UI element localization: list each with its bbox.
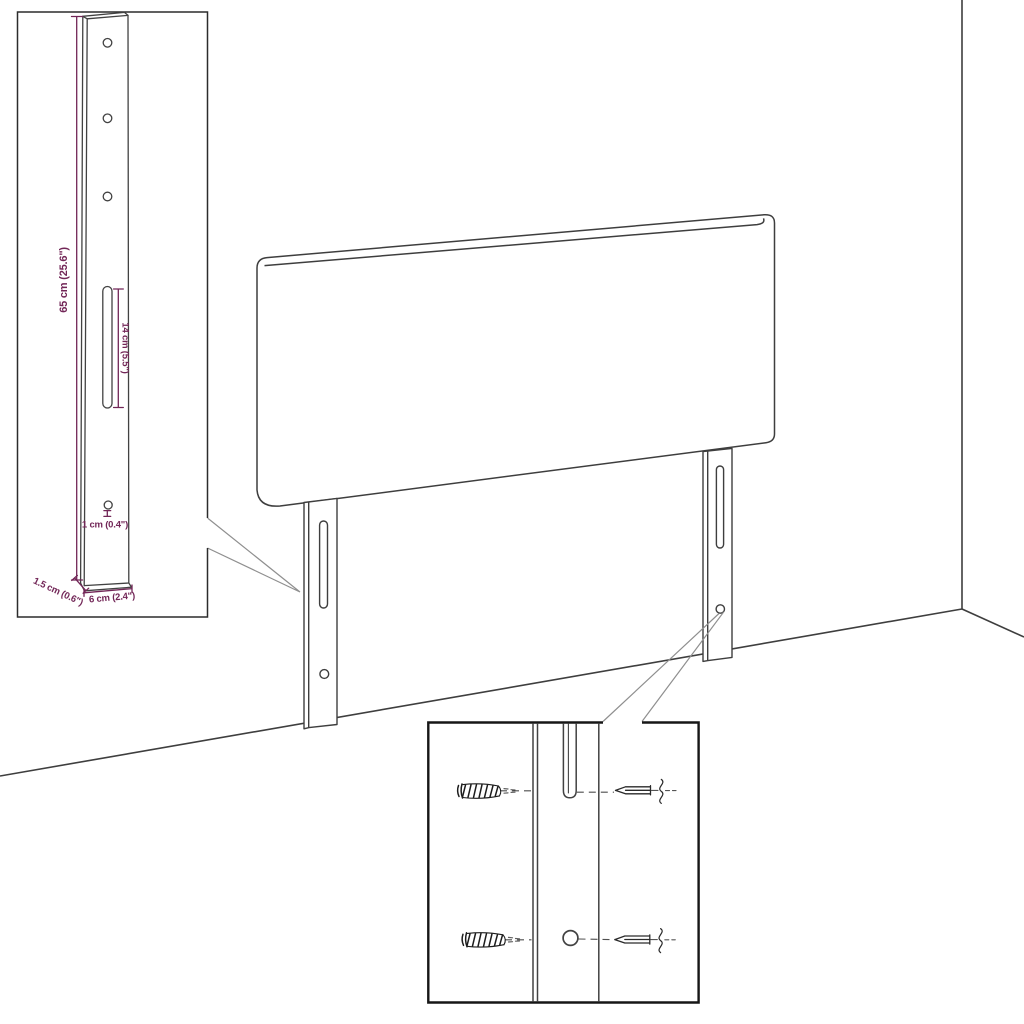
dimension-label-hole-diameter: 1 cm (0.4") [82,519,128,530]
inset-screw-detail [428,722,699,1003]
inset-leg-right-edge [128,15,129,583]
headboard-leg-right [703,448,732,661]
diagram-canvas [0,0,1024,1024]
floor-line-right [962,609,1024,637]
dimension-label-leg-height: 65 cm (25.6") [58,247,70,313]
callout-lines [208,518,724,722]
guide-dash-line-bottom-right [579,939,613,940]
headboard-leg-left [304,498,337,728]
dimension-label-slot-length: 14 cm (5.5") [119,322,130,373]
headboard-panel [257,215,775,506]
headboard-panel-outline [257,215,775,506]
headboard-assembly-diagram: 65 cm (25.6") 14 cm (5.5") 1 cm (0.4") 1… [0,0,1024,1024]
callout-top-inset-to-left-leg [208,518,301,592]
